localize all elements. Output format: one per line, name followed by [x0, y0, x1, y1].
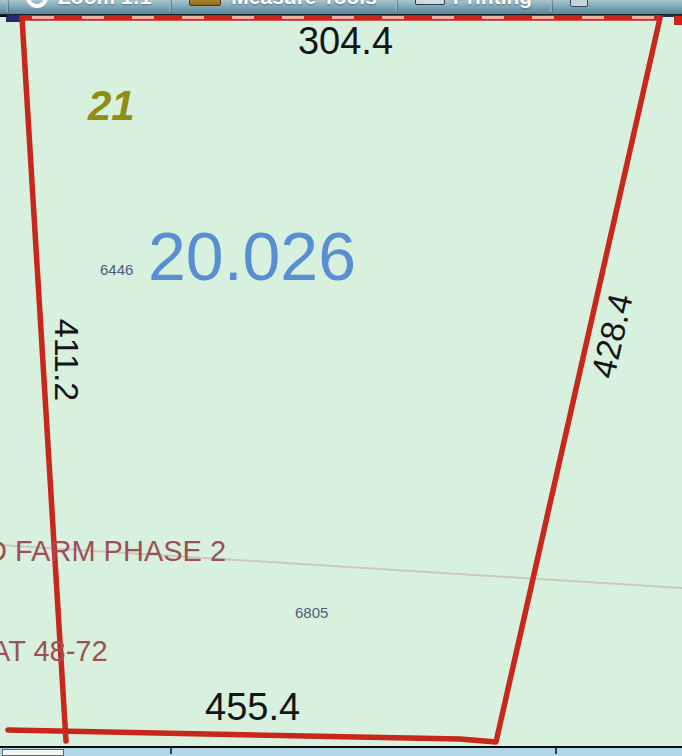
toolbar-separator: [6, 0, 8, 12]
magnifier-icon: [26, 0, 48, 8]
partial-toolbar-button[interactable]: [558, 0, 600, 14]
parcel-map-canvas[interactable]: 304.4 411.2 428.4 455.4 21 20.026 6446 6…: [0, 14, 682, 746]
printing-button[interactable]: Printing: [403, 0, 544, 14]
ruler-icon: [189, 0, 221, 6]
zoom-button-label: Zoom 1:1: [58, 0, 151, 9]
boundary-length-left: 411.2: [47, 319, 86, 402]
scale-tick: [170, 748, 172, 754]
scale-tick: [555, 748, 557, 754]
toolbar-inner: Zoom 1:1 Measure Tools Printing: [0, 0, 682, 14]
toolbar-separator: [550, 0, 552, 12]
zoom-button[interactable]: Zoom 1:1: [14, 0, 163, 14]
subdivision-label: D FARM PHASE 2: [0, 535, 226, 568]
printing-label: Printing: [453, 0, 532, 9]
boundary-length-top: 304.4: [258, 20, 433, 63]
measure-tools-label: Measure Tools: [231, 0, 376, 9]
toolbar: Zoom 1:1 Measure Tools Printing: [0, 0, 682, 15]
scale-label-box: [2, 749, 64, 756]
lot-number: 21: [88, 82, 135, 130]
parcel-id: 6805: [295, 604, 328, 621]
boundary-sliver: [674, 16, 682, 25]
corner-marker: [6, 14, 20, 22]
toolbar-separator: [395, 0, 397, 12]
acreage-value: 20.026: [148, 217, 356, 295]
parcel-id: 6446: [100, 261, 133, 278]
measure-tools-button[interactable]: Measure Tools: [177, 0, 388, 14]
partial-icon: [570, 0, 588, 7]
scale-bar: [0, 746, 682, 756]
toolbar-separator: [169, 0, 171, 12]
boundary-length-bottom: 455.4: [205, 686, 300, 729]
printer-icon: [415, 0, 443, 7]
plat-reference-label: AT 48-72: [0, 635, 108, 668]
